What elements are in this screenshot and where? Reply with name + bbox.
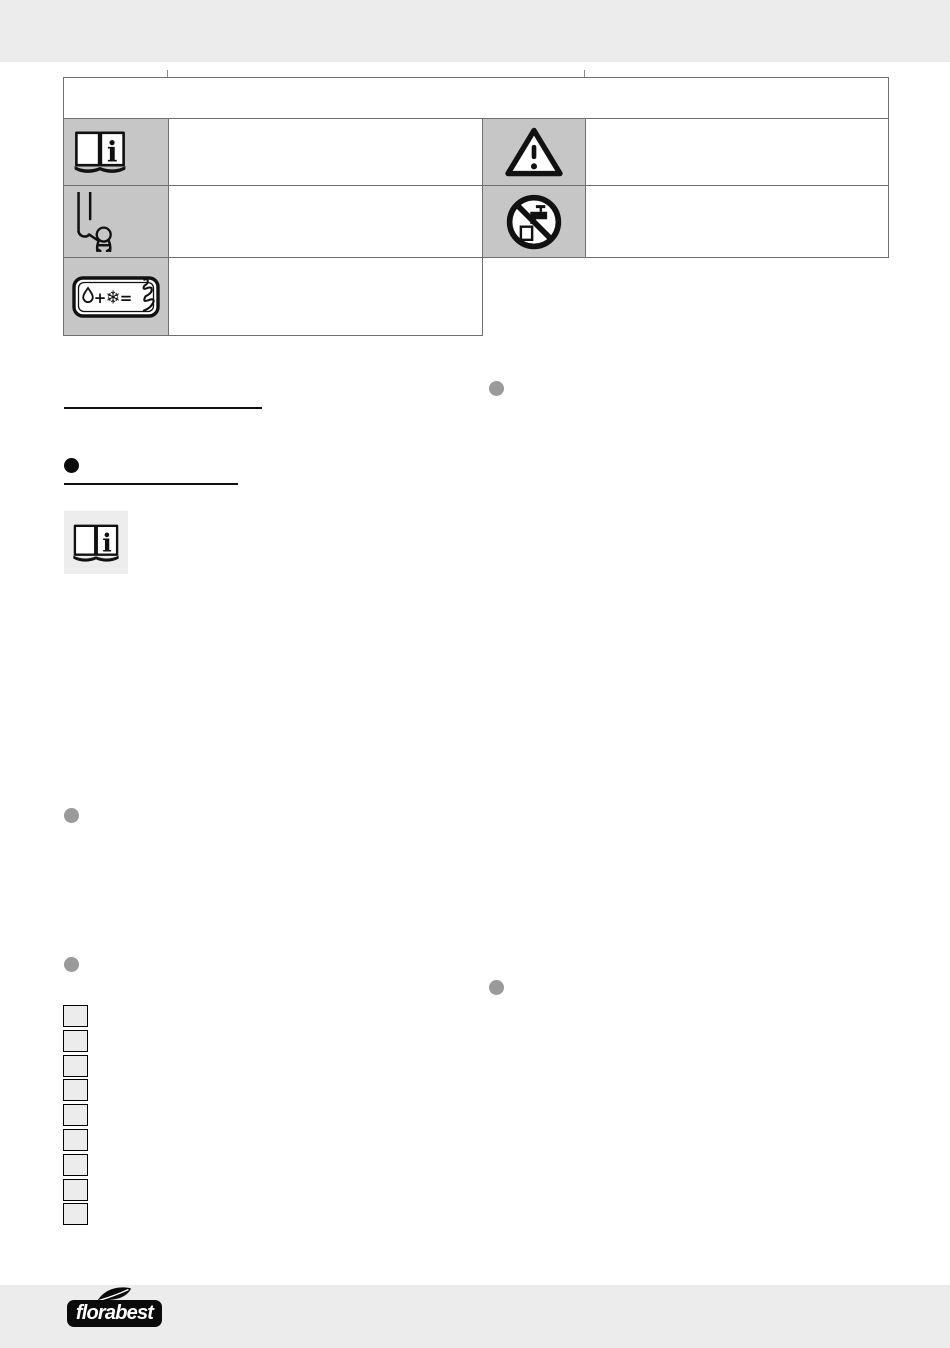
top-page-band [0, 0, 950, 62]
section-bullet [489, 381, 504, 396]
symbols-table: i [63, 77, 889, 336]
heading-underline [64, 483, 238, 485]
logo-text: florabest [76, 1300, 153, 1327]
symbol-cell: i [63, 118, 169, 186]
section-bullet [489, 980, 504, 995]
figure-callout-square [63, 1005, 88, 1027]
figure-callout-square [63, 1104, 88, 1126]
frost-warning-icon: + ❄ = [72, 276, 160, 318]
svg-text:❄: ❄ [105, 287, 120, 308]
open-book-info-icon: i [72, 128, 128, 176]
svg-text:i: i [102, 528, 112, 557]
symbol-description-cell [585, 118, 889, 186]
table-column-tick [584, 70, 585, 77]
logo-plate: florabest [67, 1300, 162, 1327]
note-icon-box: i [64, 511, 128, 574]
section-bullet [64, 957, 79, 972]
symbol-description-cell [585, 185, 889, 258]
heading-underline [64, 407, 262, 409]
florabest-logo: florabest [60, 1284, 190, 1336]
symbols-table-header-cell [63, 77, 889, 119]
svg-text:+: + [94, 289, 107, 307]
symbol-cell [482, 118, 586, 186]
symbol-description-cell [168, 257, 483, 336]
svg-text:i: i [107, 136, 118, 169]
figure-callout-square [63, 1203, 88, 1225]
figure-callout-square [63, 1079, 88, 1101]
svg-text:=: = [120, 289, 133, 307]
open-book-info-icon: i [71, 521, 121, 565]
figure-callout-square [63, 1179, 88, 1201]
figure-callout-square [63, 1154, 88, 1176]
symbol-cell: + ❄ = [63, 257, 169, 336]
no-drinking-water-icon [504, 192, 564, 252]
figure-callout-squares [63, 1005, 88, 1225]
keep-children-away-icon [72, 192, 118, 252]
symbol-cell [482, 185, 586, 258]
warning-triangle-icon [504, 126, 564, 178]
manual-page: i [0, 0, 950, 1348]
figure-callout-square [63, 1055, 88, 1077]
symbol-cell [63, 185, 169, 258]
symbol-description-cell [168, 185, 483, 258]
figure-callout-square [63, 1030, 88, 1052]
section-heading-bullet [64, 458, 79, 473]
figure-callout-square [63, 1129, 88, 1151]
section-bullet [64, 808, 79, 823]
symbol-description-cell [168, 118, 483, 186]
table-column-tick [167, 70, 168, 77]
